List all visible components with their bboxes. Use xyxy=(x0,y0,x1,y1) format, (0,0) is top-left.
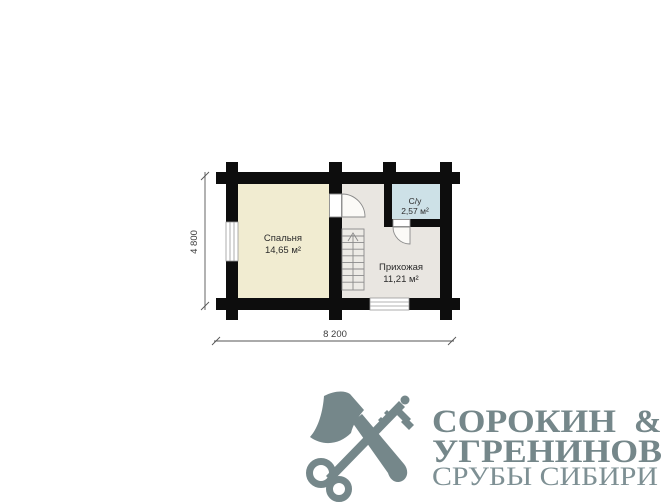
hallway-name-label: Прихожая xyxy=(379,262,423,273)
wall-top xyxy=(216,172,460,184)
logo-tagline: СРУБЫ СИБИРИ xyxy=(432,462,658,491)
wall-divider-upper xyxy=(329,184,342,194)
wall-bathroom-bottom-left xyxy=(384,219,393,227)
log-end-bottom-divider xyxy=(329,310,342,320)
log-end-top-divider xyxy=(329,162,342,172)
bottom-window xyxy=(370,298,409,310)
bathroom-name-label: С/у xyxy=(409,196,423,206)
company-logo: СОРОКИН & УГРЕНИНОВ СРУБЫ СИБИРИ xyxy=(310,392,663,499)
wall-divider-lower xyxy=(329,217,342,298)
bedroom-area-label: 14,65 м² xyxy=(265,245,301,256)
horizontal-dimension: 8 200 xyxy=(212,329,456,345)
vertical-dimension-label: 4 800 xyxy=(189,230,200,254)
page: Спальня 14,65 м² Прихожая 11,21 м² С/у 2… xyxy=(0,0,667,502)
bedroom-name-label: Спальня xyxy=(264,233,302,244)
hallway-area-label: 11,21 м² xyxy=(383,274,418,285)
drawing: Спальня 14,65 м² Прихожая 11,21 м² С/у 2… xyxy=(0,0,667,502)
bathroom-area-label: 2,57 м² xyxy=(401,206,429,216)
horizontal-dimension-label: 8 200 xyxy=(323,329,347,340)
wall-right xyxy=(440,162,452,320)
vertical-dimension: 4 800 xyxy=(189,172,209,310)
wall-bottom xyxy=(216,298,460,310)
left-window xyxy=(226,222,238,261)
staircase xyxy=(342,229,364,290)
axe-and-key-icon xyxy=(310,392,415,499)
floor-plan: Спальня 14,65 м² Прихожая 11,21 м² С/у 2… xyxy=(189,162,460,345)
log-end-top-bathroom xyxy=(383,162,396,172)
wall-bathroom-bottom-right xyxy=(410,219,440,227)
